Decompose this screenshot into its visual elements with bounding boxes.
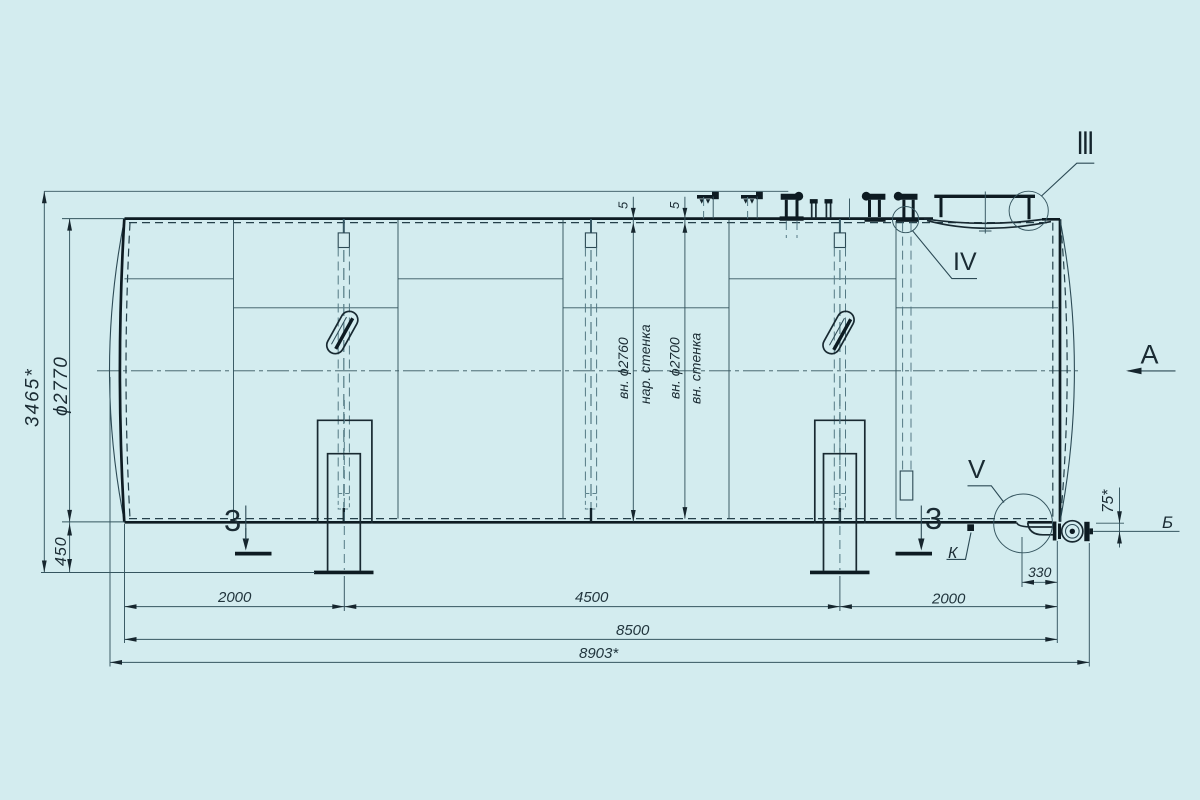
svg-text:А: А: [1141, 340, 1159, 370]
svg-text:IV: IV: [953, 248, 977, 276]
svg-text:ϕ2770: ϕ2770: [51, 356, 72, 416]
svg-text:2000: 2000: [217, 589, 252, 606]
svg-text:V: V: [968, 454, 986, 484]
svg-text:75*: 75*: [1100, 489, 1117, 513]
svg-text:Б: Б: [1162, 513, 1173, 532]
svg-text:450: 450: [53, 536, 70, 566]
svg-text:330: 330: [1028, 564, 1052, 580]
svg-text:8500: 8500: [616, 622, 650, 639]
svg-text:вн. ϕ2700: вн. ϕ2700: [666, 337, 682, 399]
svg-text:К: К: [948, 545, 959, 562]
svg-text:3: 3: [925, 501, 942, 536]
svg-text:3: 3: [224, 503, 241, 538]
svg-text:5: 5: [667, 201, 682, 209]
svg-text:вн. ϕ2760: вн. ϕ2760: [615, 337, 631, 399]
svg-text:4500: 4500: [575, 589, 609, 606]
svg-text:8903*: 8903*: [579, 645, 619, 662]
svg-text:3465*: 3465*: [23, 367, 44, 427]
svg-text:нар. стенка: нар. стенка: [637, 324, 653, 404]
svg-text:вн. стенка: вн. стенка: [688, 332, 704, 404]
svg-text:2000: 2000: [931, 591, 966, 608]
svg-text:5: 5: [616, 201, 631, 209]
